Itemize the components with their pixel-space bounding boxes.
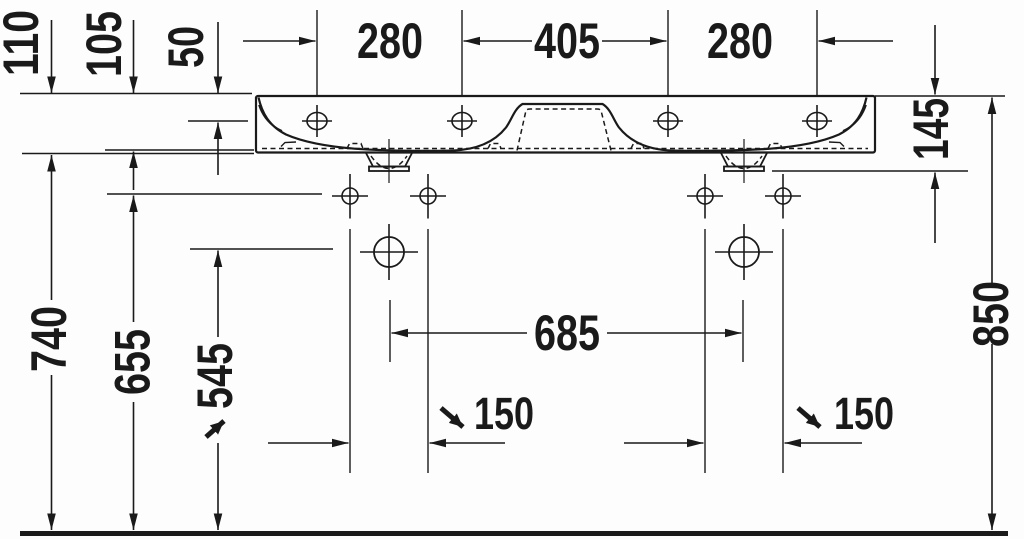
leader-arrow-545 <box>206 421 224 437</box>
tap-hole <box>802 105 832 137</box>
hidden-center-deck <box>517 109 611 151</box>
dim-label-110: 110 <box>0 10 49 76</box>
dim-label-280-left: 280 <box>357 13 423 69</box>
dim-label-150-right: 150 <box>834 388 894 439</box>
dim-label-685: 685 <box>534 305 600 361</box>
small-fixing-hole <box>687 174 723 219</box>
dimension-labels: 280 405 280 110 105 50 740 655 545 145 8… <box>0 10 1019 439</box>
washbasin-dimension-drawing: 280 405 280 110 105 50 740 655 545 145 8… <box>0 0 1024 539</box>
dim-label-655: 655 <box>105 329 161 395</box>
dim-label-145: 145 <box>903 98 959 160</box>
tap-holes <box>302 105 832 137</box>
dim-label-405: 405 <box>534 13 600 69</box>
small-fixing-hole <box>765 174 801 219</box>
large-fixing-hole <box>360 224 418 280</box>
leader-arrow-150-right <box>798 408 820 427</box>
dim-label-50: 50 <box>158 26 214 68</box>
tap-hole <box>302 105 332 137</box>
tap-hole <box>653 105 683 137</box>
rim-step-right <box>829 142 844 147</box>
dim-label-545: 545 <box>187 343 243 409</box>
dim-label-280-right: 280 <box>707 13 773 69</box>
large-fixing-hole <box>715 224 773 280</box>
small-fixing-hole <box>410 174 446 219</box>
tap-hole <box>447 105 477 137</box>
extension-lines <box>317 10 817 473</box>
technical-drawing-page: 280 405 280 110 105 50 740 655 545 145 8… <box>0 0 1024 539</box>
small-fixing-hole <box>332 174 368 219</box>
drain-bosses <box>366 139 767 183</box>
rim-step-left <box>281 142 296 147</box>
dim-label-740: 740 <box>21 306 77 372</box>
washbasin-body <box>256 96 875 153</box>
fixing-holes <box>332 174 801 280</box>
dim-label-150-left: 150 <box>474 388 534 439</box>
dim-label-105: 105 <box>76 11 132 77</box>
dim-label-850: 850 <box>963 281 1019 347</box>
reference-lines <box>20 94 1008 534</box>
leader-arrow-150-left <box>441 408 463 427</box>
